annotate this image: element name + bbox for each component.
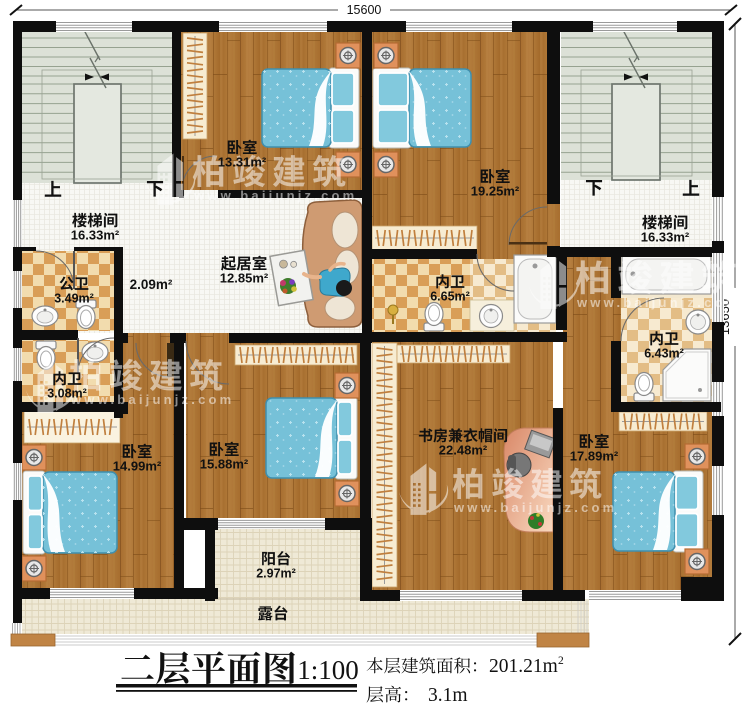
svg-text:2.97m²: 2.97m² [256,567,296,581]
svg-text:15600: 15600 [347,3,382,17]
svg-text:www.baijunjz.com: www.baijunjz.com [193,188,357,203]
svg-text:19.25m²: 19.25m² [471,184,520,199]
svg-text:201.21m: 201.21m [489,656,558,677]
svg-text:17.89m²: 17.89m² [570,449,619,464]
svg-text:15.88m²: 15.88m² [200,457,249,472]
svg-text:14.99m²: 14.99m² [113,459,162,474]
svg-text:2.09m²: 2.09m² [130,277,173,292]
svg-text:22.48m²: 22.48m² [439,443,488,458]
svg-text:16.33m²: 16.33m² [71,228,120,243]
svg-text:3.08m²: 3.08m² [47,387,87,401]
svg-text:2: 2 [558,655,564,667]
svg-text:1:100: 1:100 [297,655,359,685]
svg-text:12.85m²: 12.85m² [220,271,269,286]
svg-text:www.baijunjz.com: www.baijunjz.com [70,392,234,407]
svg-text:6.65m²: 6.65m² [430,290,470,304]
svg-text:13.31m²: 13.31m² [218,155,267,170]
svg-text:6.43m²: 6.43m² [644,347,684,361]
svg-text:16.33m²: 16.33m² [641,230,690,245]
svg-text:3.1m: 3.1m [428,685,468,706]
svg-text:www.baijunjz.com: www.baijunjz.com [576,295,740,310]
svg-text:www.baijunjz.com: www.baijunjz.com [453,500,617,515]
svg-text:3.49m²: 3.49m² [54,292,94,306]
